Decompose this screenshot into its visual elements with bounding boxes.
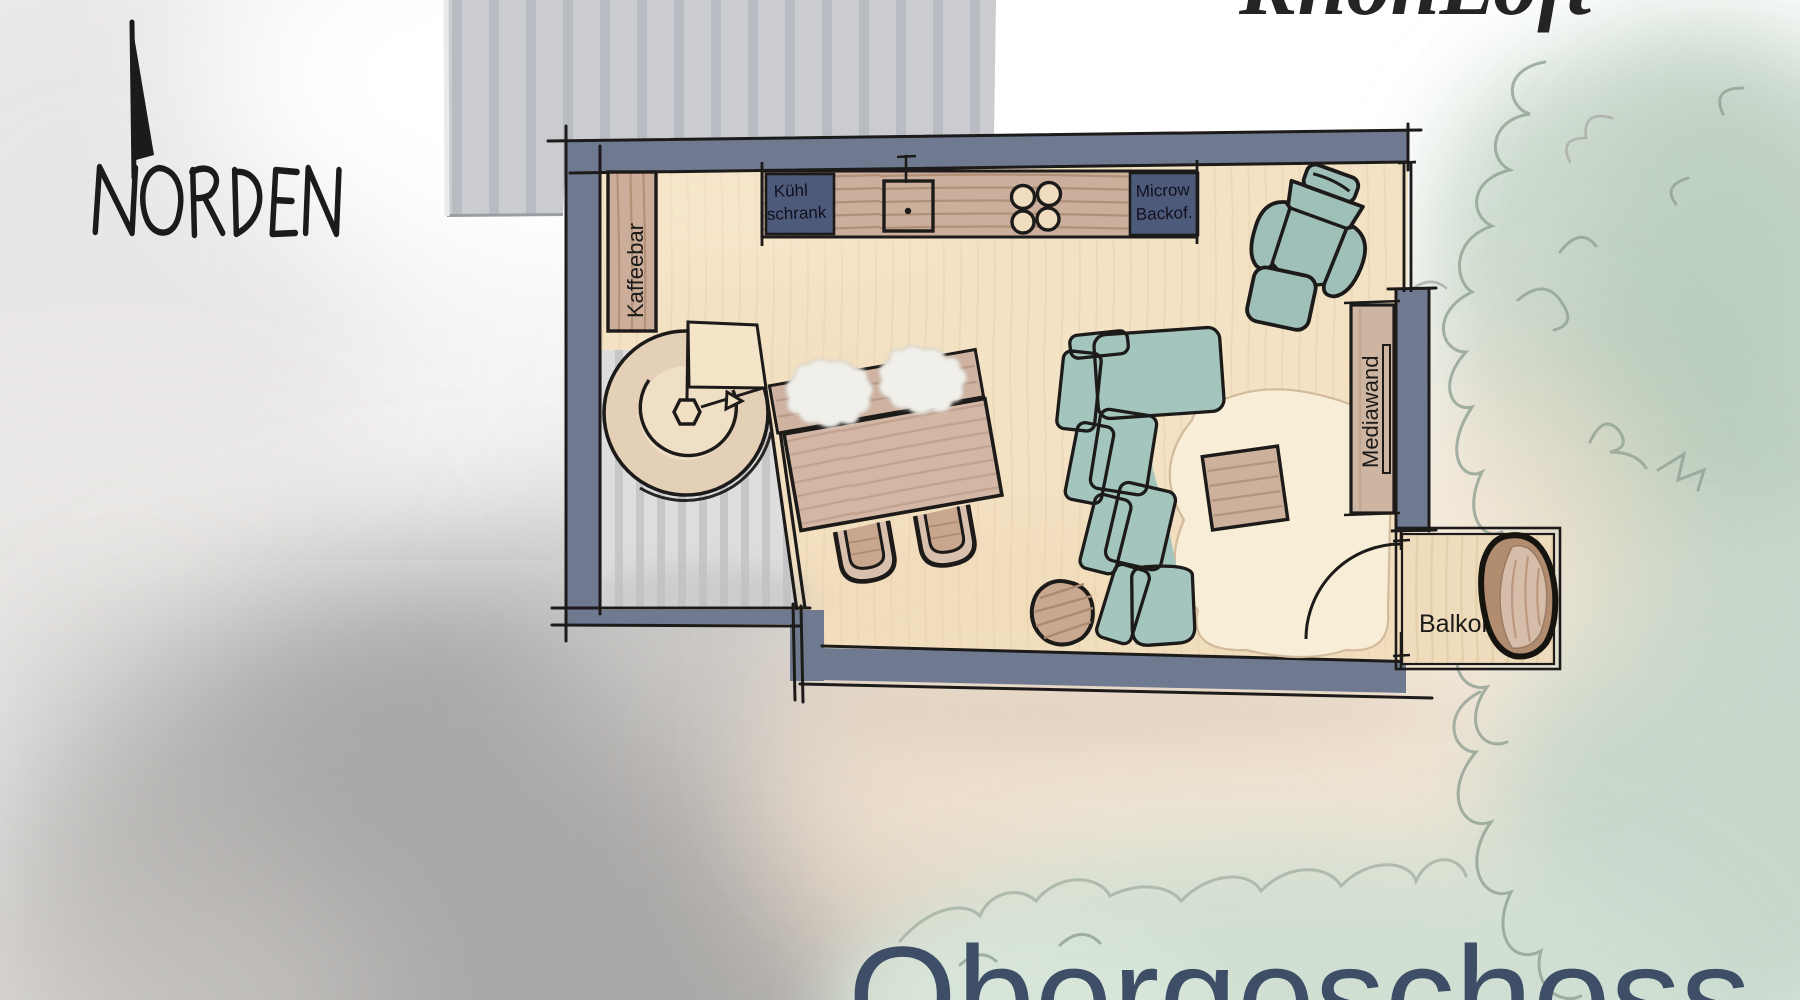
svg-text:Mediawand: Mediawand bbox=[1358, 355, 1383, 468]
svg-text:Backof.: Backof. bbox=[1136, 203, 1193, 224]
svg-text:schrank: schrank bbox=[766, 203, 827, 224]
svg-text:Microw: Microw bbox=[1136, 180, 1191, 201]
svg-text:Kühl: Kühl bbox=[773, 181, 808, 201]
svg-text:Kaffeebar: Kaffeebar bbox=[623, 223, 648, 318]
svg-text:RhönLoft: RhönLoft bbox=[1238, 0, 1594, 34]
svg-text:Obergeschoss: Obergeschoss bbox=[848, 917, 1751, 1000]
